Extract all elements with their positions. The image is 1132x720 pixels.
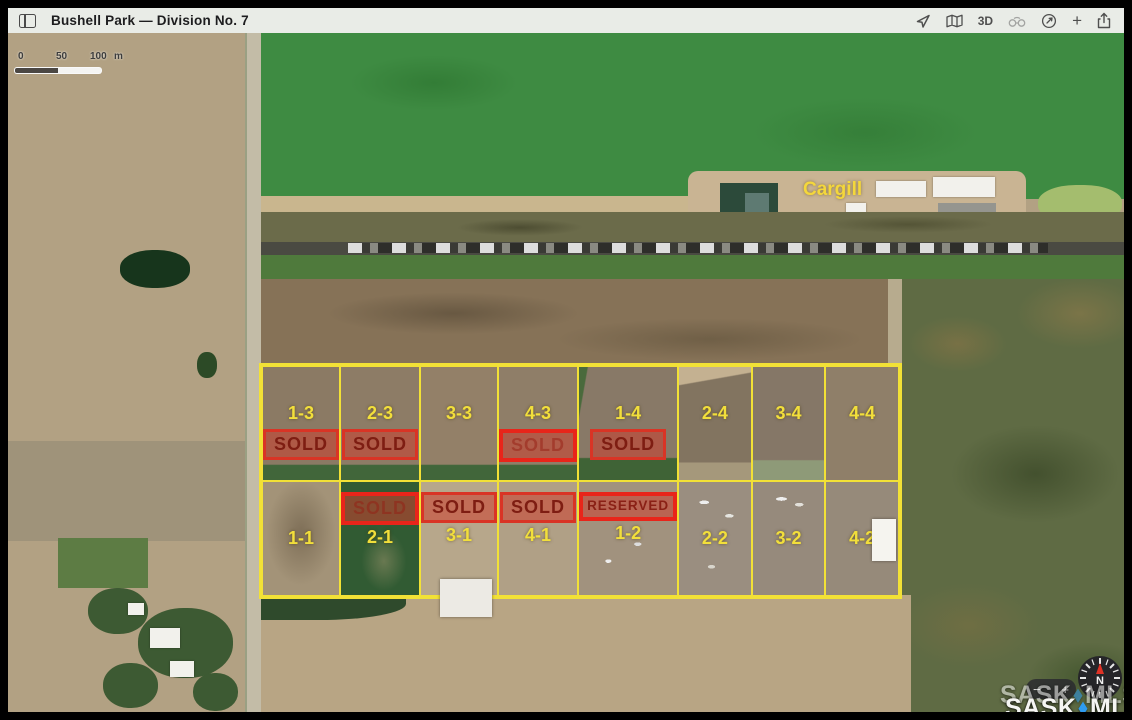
barn-building (440, 579, 492, 617)
lot-4-1: SOLD 4-1 (498, 481, 578, 596)
white-building (872, 519, 896, 561)
scale-unit: m (114, 51, 123, 62)
lot-label: 1-4 (615, 403, 641, 424)
farmstead-trees (103, 663, 158, 708)
status-badge: SOLD (341, 492, 419, 525)
status-badge: SOLD (342, 429, 418, 460)
cargill-map-label: Cargill (803, 179, 862, 201)
lot-1-3: 1-3 SOLD (262, 366, 340, 481)
lot-2-1: SOLD 2-1 (340, 481, 420, 596)
rail-cars (348, 243, 1048, 253)
scrub-strip (261, 212, 1124, 243)
lot-label: 3-1 (446, 525, 472, 546)
lot-label: 4-4 (849, 403, 875, 424)
lot-3-2: 3-2 (752, 481, 826, 596)
scale-tick-50: 50 (56, 51, 67, 62)
east-field (902, 279, 1124, 712)
lot-1-2: RESERVED 1-2 (578, 481, 678, 596)
lot-label: 4-3 (525, 403, 551, 424)
status-badge: RESERVED (579, 492, 677, 521)
scale-tick-100: 100 (90, 51, 107, 62)
lot-label: 2-2 (702, 528, 728, 549)
lot-label: 3-4 (776, 403, 802, 424)
3d-button[interactable]: 3D (978, 14, 993, 28)
pond (120, 250, 190, 288)
status-badge: SOLD (500, 492, 576, 523)
lot-label: 3-2 (776, 528, 802, 549)
lot-label: 2-3 (367, 403, 393, 424)
lot-4-4: 4-4 (825, 366, 899, 481)
lot-2-2: 2-2 (678, 481, 752, 596)
farm-building (170, 661, 194, 677)
lot-label: 4-1 (525, 525, 551, 546)
share-icon[interactable] (1097, 12, 1111, 29)
scale-tick-0: 0 (18, 51, 24, 62)
page-title: Bushell Park — Division No. 7 (51, 13, 249, 28)
lot-grid: 1-3 SOLD 2-3 SOLD 3-3 4-3 SOLD 1-4 SOLD … (259, 363, 902, 599)
lot-4-3: 4-3 SOLD (498, 366, 578, 481)
lot-3-3: 3-3 (420, 366, 498, 481)
screenshot-frame: Bushell Park — Division No. 7 3D + (0, 0, 1132, 720)
grass-strip (261, 255, 1124, 281)
status-badge: SOLD (263, 429, 339, 460)
status-badge: SOLD (421, 492, 497, 523)
map-icon[interactable] (946, 14, 963, 28)
status-badge: SOLD (590, 429, 666, 460)
lot-label: 2-4 (702, 403, 728, 424)
warehouse (876, 181, 926, 197)
titlebar: Bushell Park — Division No. 7 3D + (8, 8, 1124, 33)
lot-label: 1-3 (288, 403, 314, 424)
farm-building (128, 603, 144, 615)
east-west-road (261, 196, 731, 213)
warehouse (933, 177, 995, 197)
lot-label: 1-1 (288, 528, 314, 549)
plus-icon[interactable]: + (1072, 12, 1082, 29)
compass-dial-icon[interactable] (1041, 13, 1057, 29)
lot-label: 3-3 (446, 403, 472, 424)
scale-bar-graphic (14, 67, 102, 74)
farm-building (150, 628, 180, 648)
watermark-saskmls: SASK⬧MLS® (1005, 694, 1124, 712)
green-pasture (58, 538, 148, 588)
status-badge: SOLD (499, 429, 577, 462)
satellite-map[interactable]: Cargill 1-3 SOLD 2-3 SOLD 3-3 4-3 SOLD (8, 33, 1124, 712)
lot-2-3: 2-3 SOLD (340, 366, 420, 481)
farmstead-trees (193, 673, 238, 711)
lot-label: 2-1 (367, 527, 393, 548)
lot-1-1: 1-1 (262, 481, 340, 596)
scale-bar: 0 50 100 m (14, 51, 134, 74)
location-arrow-icon[interactable] (915, 13, 931, 29)
lot-2-4: 2-4 (678, 366, 752, 481)
binoculars-icon[interactable] (1008, 14, 1026, 28)
sidebar-toggle-icon[interactable] (19, 14, 36, 28)
lot-3-4: 3-4 (752, 366, 826, 481)
plowed-field (261, 279, 902, 365)
tree-cluster (197, 352, 217, 378)
lot-label: 1-2 (615, 523, 641, 544)
map-pin-icon: ⬧ (1078, 697, 1088, 712)
lot-1-4: 1-4 SOLD (578, 366, 678, 481)
